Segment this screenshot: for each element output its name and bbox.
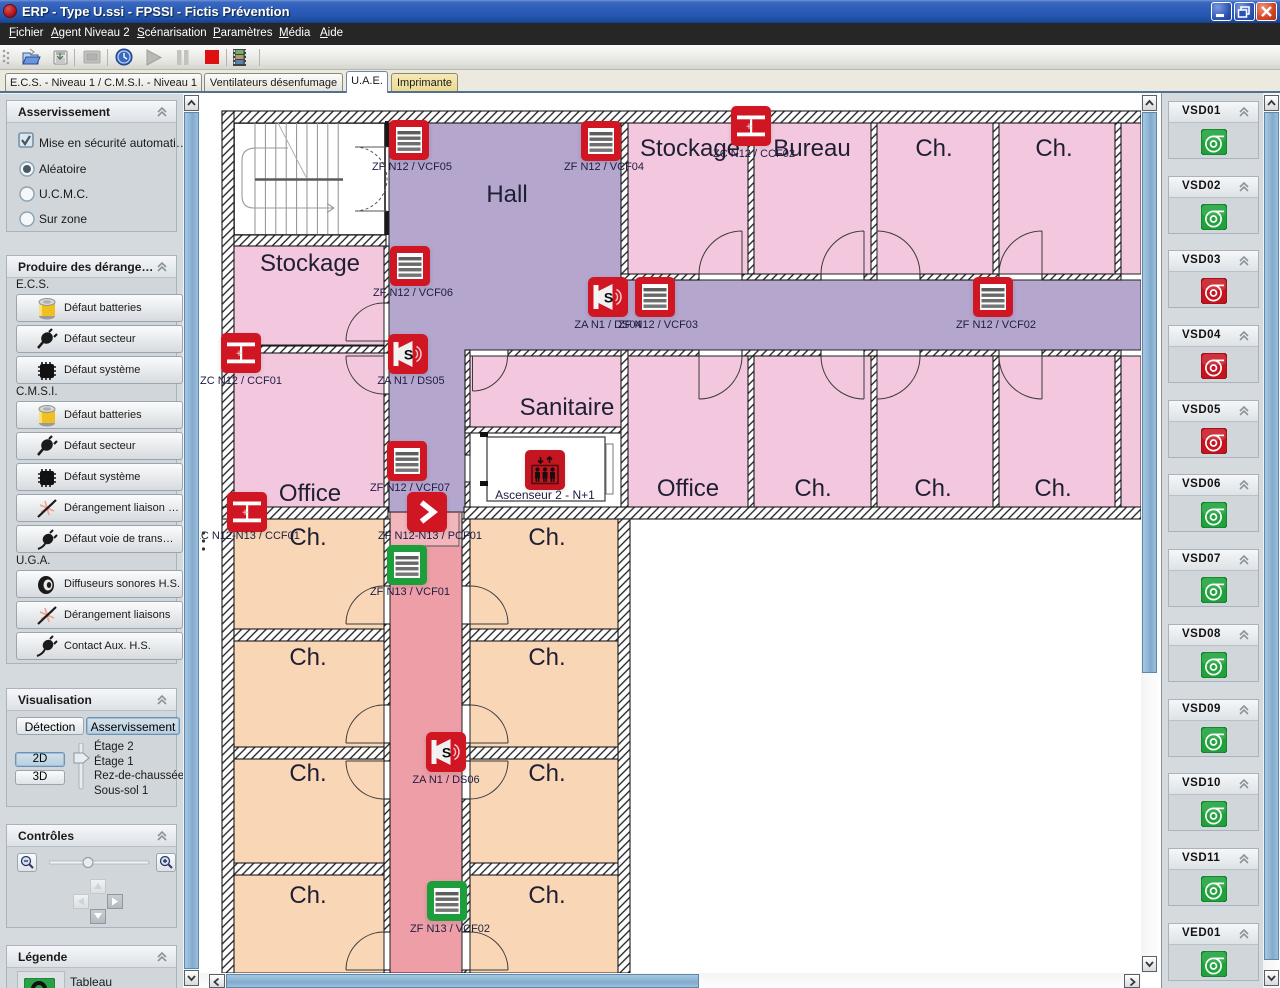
svg-text:ZF N12 / VCF02: ZF N12 / VCF02	[956, 319, 1036, 331]
svg-text:Ch.: Ch.	[1034, 475, 1071, 502]
svg-text:ZF N12 / VCF05: ZF N12 / VCF05	[372, 161, 452, 173]
svg-text:ZA N1 / DS06: ZA N1 / DS06	[412, 774, 479, 786]
svg-text:Ch.: Ch.	[914, 475, 951, 502]
svg-text:Ch.: Ch.	[528, 644, 565, 671]
svg-text:ZC N12 / CCF01: ZC N12 / CCF01	[200, 375, 282, 387]
svg-text:Ch.: Ch.	[794, 475, 831, 502]
svg-text:Ch.: Ch.	[289, 760, 326, 787]
svg-text:ZF N12-N13 / PCF01: ZF N12-N13 / PCF01	[378, 530, 482, 542]
svg-text:Ch.: Ch.	[289, 644, 326, 671]
svg-text:ZF N13 / VCF02: ZF N13 / VCF02	[410, 923, 490, 935]
svg-text:Stockage: Stockage	[260, 250, 360, 277]
svg-text:Ch.: Ch.	[528, 524, 565, 551]
svg-text:ZF N12 / VCF06: ZF N12 / VCF06	[373, 287, 453, 299]
svg-text:ZC N12-N13 / CCF01: ZC N12-N13 / CCF01	[200, 530, 300, 542]
svg-text:Ch.: Ch.	[915, 135, 952, 162]
svg-text:Office: Office	[657, 475, 719, 502]
svg-text:ZF N12 / VCF03: ZF N12 / VCF03	[618, 319, 698, 331]
svg-text:Sanitaire: Sanitaire	[520, 394, 615, 421]
svg-text:Ch.: Ch.	[1035, 135, 1072, 162]
svg-text:ZA N1 / DS05: ZA N1 / DS05	[377, 375, 444, 387]
svg-text:ZC N12 / CCF02: ZC N12 / CCF02	[713, 148, 795, 160]
svg-text:ZF N12 / VCF04: ZF N12 / VCF04	[564, 161, 644, 173]
svg-text:ZF N13 / VCF01: ZF N13 / VCF01	[370, 586, 450, 598]
svg-text:Hall: Hall	[486, 181, 527, 208]
svg-text:Office: Office	[279, 480, 341, 507]
svg-text:Ch.: Ch.	[289, 882, 326, 909]
svg-text:Ch.: Ch.	[528, 760, 565, 787]
svg-text:Ascenseur 2 - N+1: Ascenseur 2 - N+1	[495, 488, 595, 502]
svg-text:ZF N12 / VCF07: ZF N12 / VCF07	[370, 482, 450, 494]
svg-text:Ch.: Ch.	[528, 882, 565, 909]
